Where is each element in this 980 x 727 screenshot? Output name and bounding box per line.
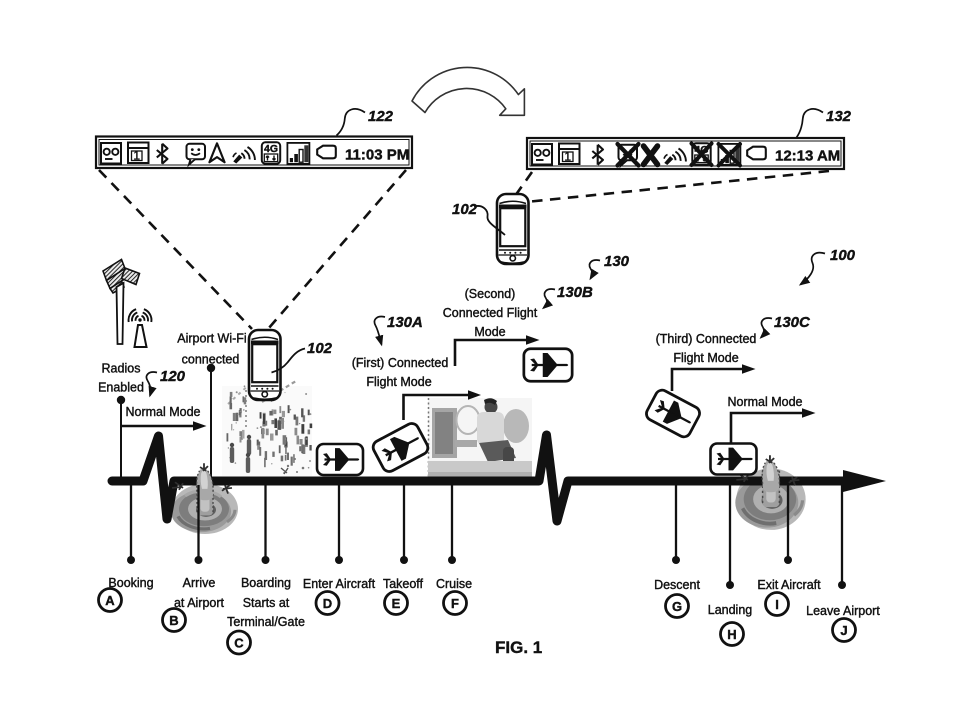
svg-text:Terminal/Gate: Terminal/Gate xyxy=(227,615,305,629)
svg-text:Airport Wi-Fi: Airport Wi-Fi xyxy=(177,332,246,346)
svg-text:100: 100 xyxy=(830,247,856,264)
svg-text:I: I xyxy=(775,597,779,612)
svg-text:G: G xyxy=(672,599,682,614)
svg-text:Connected Flight: Connected Flight xyxy=(443,306,538,320)
svg-text:E: E xyxy=(392,596,401,611)
svg-text:130A: 130A xyxy=(387,314,423,331)
svg-text:Radios: Radios xyxy=(102,362,141,376)
svg-text:102: 102 xyxy=(452,201,478,218)
svg-text:Descent: Descent xyxy=(654,578,700,592)
svg-text:120: 120 xyxy=(160,368,186,385)
svg-text:Leave Airport: Leave Airport xyxy=(806,604,880,618)
svg-text:Normal Mode: Normal Mode xyxy=(727,395,802,409)
svg-text:130: 130 xyxy=(604,253,630,270)
svg-text:Landing: Landing xyxy=(708,603,753,617)
svg-text:102: 102 xyxy=(307,340,333,357)
svg-text:at Airport: at Airport xyxy=(174,596,225,610)
svg-text:Arrive: Arrive xyxy=(183,576,216,590)
svg-text:Enter Aircraft: Enter Aircraft xyxy=(303,577,376,591)
svg-text:130B: 130B xyxy=(557,284,593,301)
svg-text:Flight Mode: Flight Mode xyxy=(673,351,738,365)
svg-text:(Third) Connected: (Third) Connected xyxy=(656,332,757,346)
svg-text:Boarding: Boarding xyxy=(241,576,291,590)
svg-text:Booking: Booking xyxy=(108,576,153,590)
svg-text:132: 132 xyxy=(826,108,852,125)
svg-text:12:13 AM: 12:13 AM xyxy=(775,148,840,165)
svg-text:Cruise: Cruise xyxy=(436,577,472,591)
svg-text:J: J xyxy=(840,623,847,638)
svg-text:Enabled: Enabled xyxy=(98,381,144,395)
svg-text:11:03 PM: 11:03 PM xyxy=(345,147,409,164)
svg-text:A: A xyxy=(105,593,115,608)
svg-text:B: B xyxy=(169,613,178,628)
svg-text:Starts at: Starts at xyxy=(243,596,290,610)
svg-text:122: 122 xyxy=(368,108,394,125)
svg-text:D: D xyxy=(323,596,332,611)
svg-text:(First) Connected: (First) Connected xyxy=(352,356,449,370)
svg-text:C: C xyxy=(234,636,244,651)
svg-text:130C: 130C xyxy=(774,314,811,331)
svg-text:(Second): (Second) xyxy=(465,287,516,301)
svg-text:FIG. 1: FIG. 1 xyxy=(495,638,542,657)
svg-text:Flight Mode: Flight Mode xyxy=(366,375,431,389)
svg-text:Takeoff: Takeoff xyxy=(383,577,424,591)
svg-text:F: F xyxy=(451,596,459,611)
svg-text:Mode: Mode xyxy=(474,325,505,339)
svg-text:Exit Aircraft: Exit Aircraft xyxy=(757,578,821,592)
svg-text:Normal Mode: Normal Mode xyxy=(125,405,200,419)
svg-text:H: H xyxy=(727,627,736,642)
